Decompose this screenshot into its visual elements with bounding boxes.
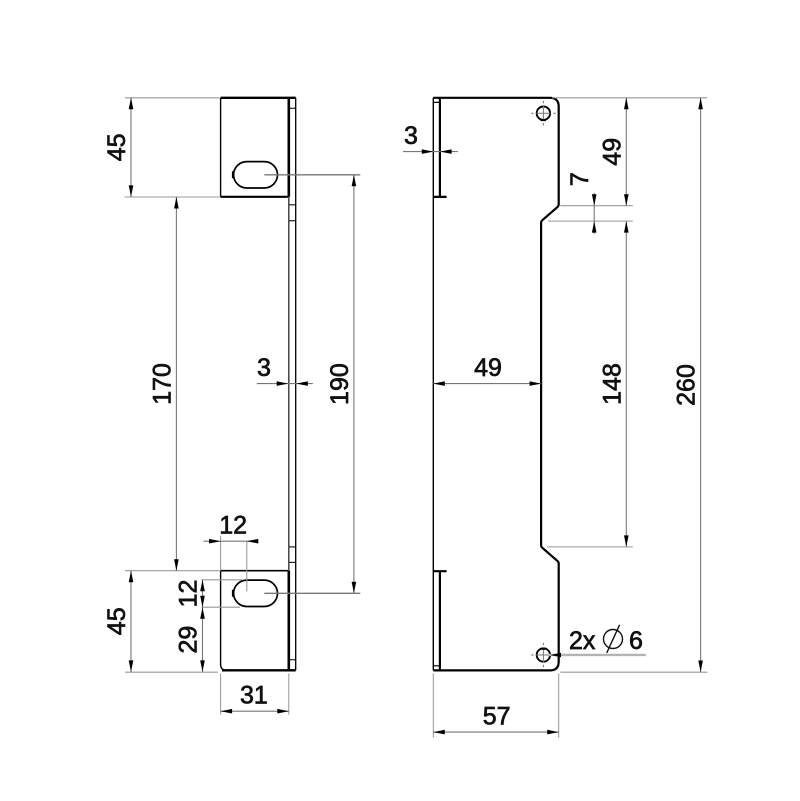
svg-text:49: 49	[598, 138, 626, 166]
svg-text:49: 49	[474, 354, 502, 382]
svg-text:12: 12	[219, 512, 247, 540]
svg-text:260: 260	[673, 364, 701, 406]
svg-text:12: 12	[175, 580, 203, 608]
svg-text:2x: 2x	[569, 627, 596, 655]
svg-text:190: 190	[326, 363, 354, 405]
svg-text:6: 6	[629, 627, 643, 655]
svg-text:45: 45	[103, 607, 131, 635]
svg-text:3: 3	[257, 354, 271, 382]
svg-text:29: 29	[175, 626, 203, 654]
svg-text:57: 57	[483, 703, 511, 731]
svg-text:3: 3	[404, 122, 418, 150]
svg-text:148: 148	[598, 363, 626, 405]
svg-text:31: 31	[240, 682, 268, 710]
svg-text:170: 170	[148, 363, 176, 405]
svg-text:45: 45	[103, 133, 131, 161]
svg-text:7: 7	[566, 172, 594, 186]
